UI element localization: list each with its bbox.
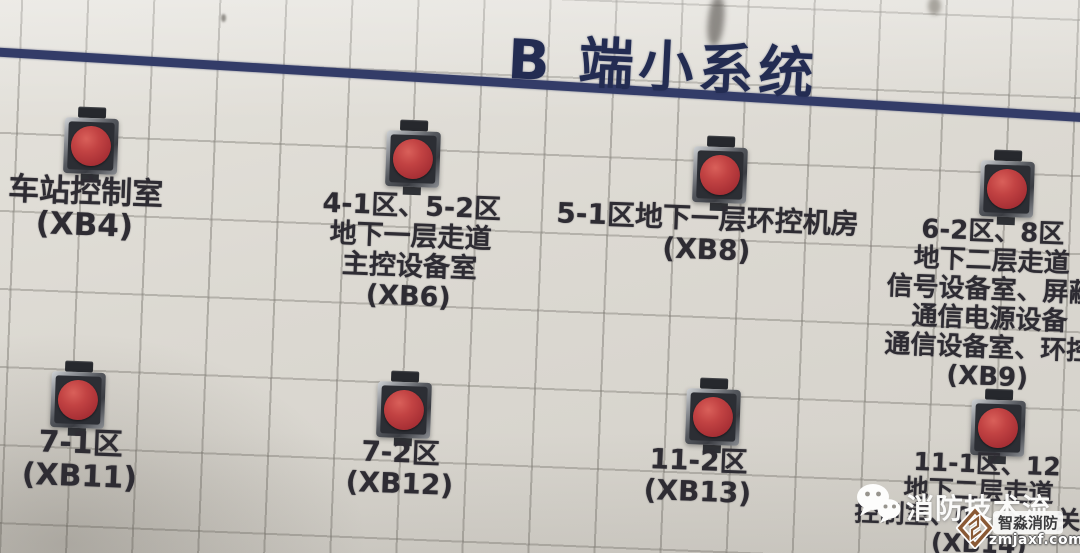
station-button-xb8[interactable] <box>692 135 749 212</box>
station-button-xb9[interactable] <box>979 149 1036 226</box>
button-frame <box>685 388 741 446</box>
button-frame <box>376 381 432 439</box>
label-xb11: 7-1区 (XB11) <box>0 423 173 496</box>
red-push-button-icon[interactable] <box>383 389 424 430</box>
panel-title: B 端小系统 <box>506 14 821 109</box>
red-push-button-icon[interactable] <box>392 138 433 179</box>
label-xb4: 车站控制室 (XB4) <box>0 172 201 247</box>
logo-url-text: zmjaxf.com <box>989 532 1080 548</box>
label-xb6: 4-1区、5-2区 地下一层走道 主控设备室 (XB6) <box>293 188 527 317</box>
label-xb13: 11-2区 (XB13) <box>605 441 791 510</box>
red-push-button-icon[interactable] <box>57 379 98 420</box>
station-button-xb4[interactable] <box>63 106 120 183</box>
logo-name-badge: 智淼消防 <box>993 511 1063 534</box>
red-push-button-icon[interactable] <box>986 168 1027 209</box>
red-push-button-icon[interactable] <box>977 407 1018 448</box>
label-xb12: 7-2区 (XB12) <box>307 433 493 502</box>
button-frame <box>50 371 106 429</box>
station-button-xb13[interactable] <box>685 377 742 454</box>
wechat-icon <box>856 483 902 527</box>
station-button-xb6[interactable] <box>385 119 442 196</box>
red-push-button-icon[interactable] <box>692 396 733 437</box>
label-xb8: 5-1区地下一层环控机房 (XB8) <box>539 197 875 272</box>
fire-alarm-button-panel-photo: B 端小系统 车站控制室 <box>0 0 1080 553</box>
red-push-button-icon[interactable] <box>699 154 740 195</box>
button-frame <box>63 117 119 175</box>
button-frame <box>979 160 1035 218</box>
label-xb9: 6-2区、8区 地下二层走道 信号设备室、屏蔽 通信电源设备 通信设备室、环控 … <box>857 213 1080 397</box>
red-push-button-icon[interactable] <box>70 125 111 166</box>
label-line: (XB11) <box>0 456 172 496</box>
button-frame <box>692 146 748 204</box>
button-frame <box>385 130 441 188</box>
button-frame <box>970 399 1026 457</box>
